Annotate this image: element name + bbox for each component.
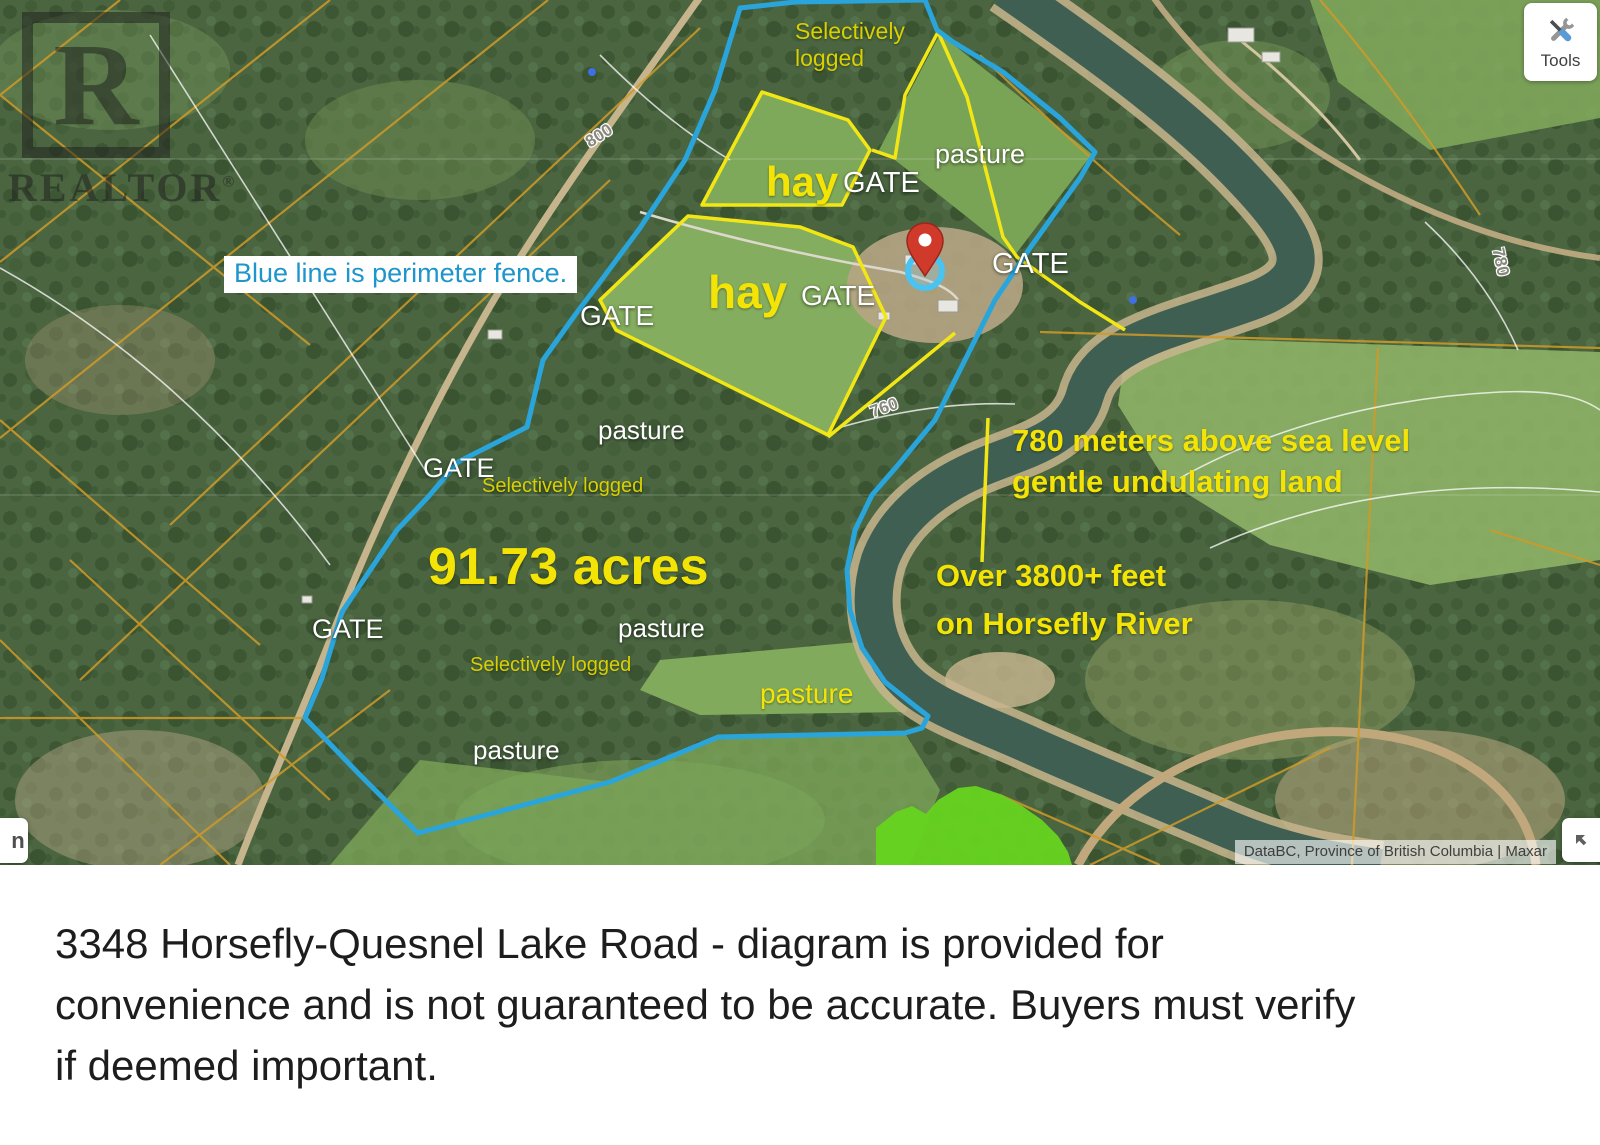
tools-button[interactable]: Tools	[1524, 3, 1597, 81]
label-pasture-mid: pasture	[598, 417, 685, 444]
label-hay-lower: hay	[708, 268, 787, 316]
page: Selectively logged pasture hay GATE GATE…	[0, 0, 1600, 1145]
label-selectively-logged-top: Selectively logged	[795, 18, 913, 72]
label-selectively-logged-low: Selectively logged	[470, 655, 631, 676]
tools-button-label: Tools	[1541, 51, 1581, 71]
label-gate-hay-upper: GATE	[843, 168, 920, 198]
label-gate-east: GATE	[992, 249, 1069, 279]
reset-extent-button[interactable]	[1562, 818, 1600, 862]
realtor-logo-r: R	[53, 26, 138, 144]
partial-glyph: n	[11, 828, 24, 854]
northwest-arrow-icon	[1572, 831, 1590, 849]
label-gate-hay-lower: GATE	[801, 281, 875, 310]
river-note-line2: on Horsefly River	[936, 608, 1193, 641]
realtor-logo-box: R	[22, 12, 170, 158]
label-pasture-low: pasture	[618, 615, 705, 642]
edge-map-button[interactable]: n	[0, 818, 28, 863]
map-canvas[interactable]: Selectively logged pasture hay GATE GATE…	[0, 0, 1600, 865]
label-hay-upper: hay	[766, 160, 838, 204]
label-pasture-yellow: pasture	[760, 679, 853, 708]
caption-line-1: 3348 Horsefly-Quesnel Lake Road - diagra…	[55, 913, 1575, 974]
river-note-line1: Over 3800+ feet	[936, 560, 1166, 593]
realtor-wordmark: REALTOR®	[8, 164, 237, 211]
elevation-note-line1: 780 meters above sea level	[1012, 425, 1410, 458]
location-pin-marker	[907, 223, 943, 288]
caption-line-2: convenience and is not guaranteed to be …	[55, 974, 1575, 1035]
label-gate-road-low: GATE	[312, 615, 384, 643]
caption-panel: 3348 Horsefly-Quesnel Lake Road - diagra…	[0, 865, 1600, 1145]
label-pasture-top: pasture	[935, 140, 1025, 168]
tools-icon	[1543, 14, 1579, 48]
acreage-label: 91.73 acres	[428, 540, 709, 595]
realtor-watermark: R REALTOR®	[8, 12, 237, 211]
elevation-note-line2: gentle undulating land	[1012, 466, 1343, 499]
caption-text: 3348 Horsefly-Quesnel Lake Road - diagra…	[55, 913, 1575, 1096]
caption-line-3: if deemed important.	[55, 1035, 1575, 1096]
label-pasture-bottom: pasture	[473, 737, 560, 764]
label-gate-road-top: GATE	[580, 301, 654, 330]
map-attribution: DataBC, Province of British Columbia | M…	[1235, 840, 1556, 864]
fence-note: Blue line is perimeter fence.	[224, 256, 577, 293]
label-selectively-logged-mid: Selectively logged	[482, 476, 643, 497]
